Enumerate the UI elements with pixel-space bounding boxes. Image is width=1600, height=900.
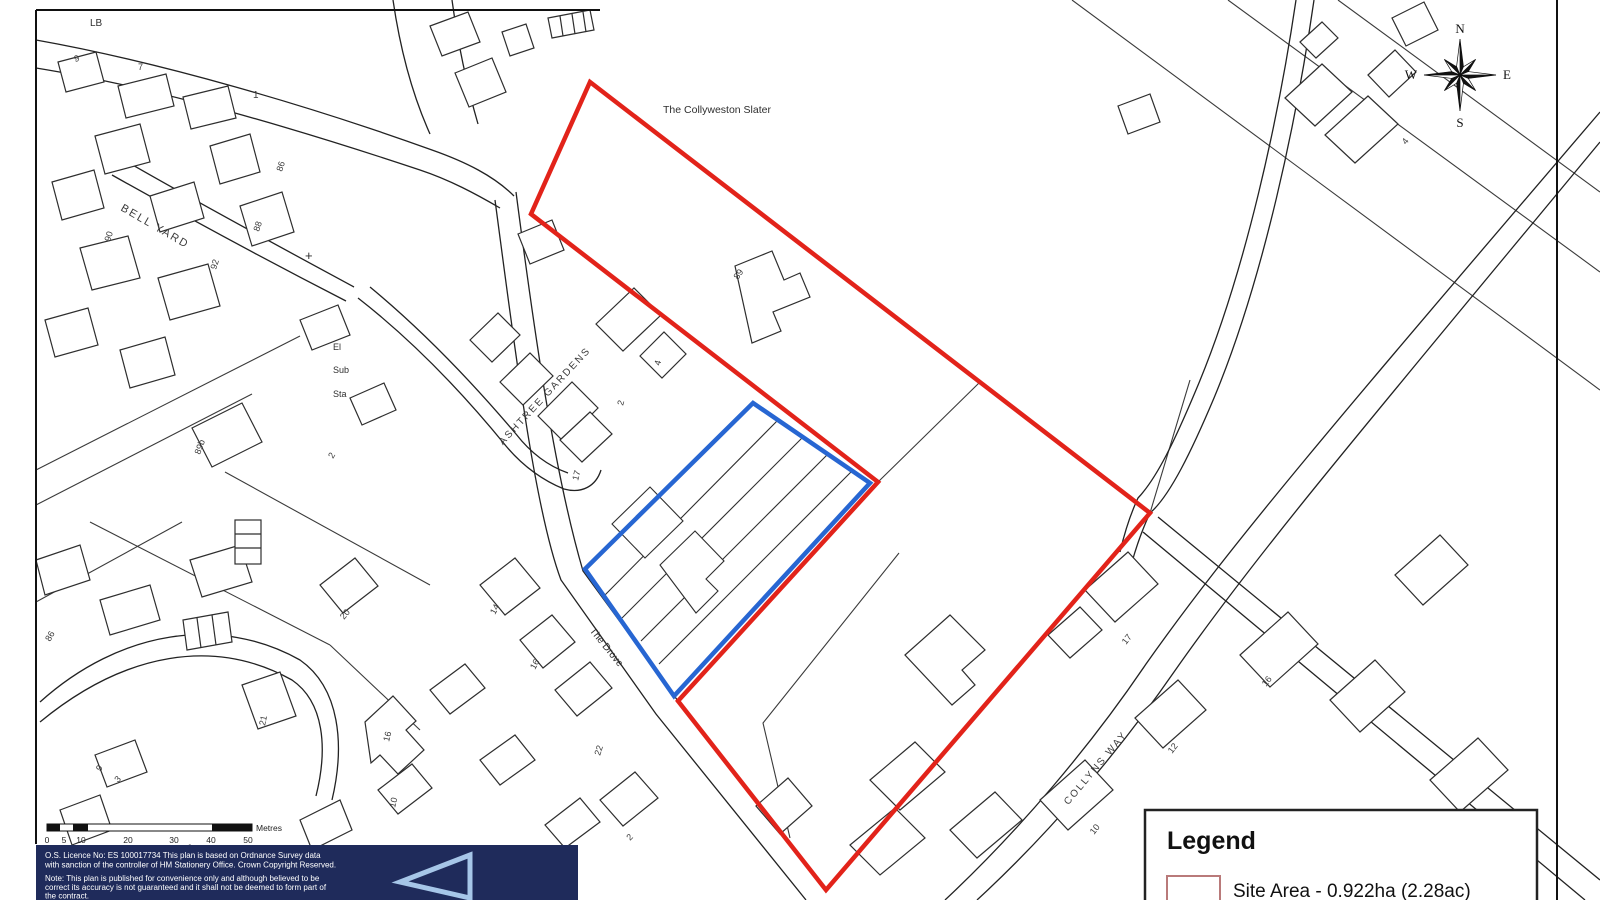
plot-number: 1 <box>253 90 259 101</box>
copyright-line: the contract. <box>45 892 89 900</box>
building-outline <box>660 531 724 613</box>
building-outline <box>520 615 575 668</box>
plot-strip-line <box>641 454 828 641</box>
secondary-boundary <box>585 403 870 696</box>
parcel-line <box>878 382 980 482</box>
scale-tick-label: 30 <box>169 835 179 845</box>
building-outline <box>365 696 424 774</box>
building-outline <box>870 742 945 810</box>
building-outline <box>1392 2 1438 46</box>
building-outline <box>80 236 140 290</box>
building-outline <box>470 313 520 362</box>
building-outline <box>235 520 261 564</box>
scale-bar-segment <box>212 824 252 831</box>
label-lb: LB <box>90 18 103 29</box>
building-outline <box>183 612 232 650</box>
compass-north-label: N <box>1455 21 1465 36</box>
plus-mark: + <box>305 248 313 263</box>
building-outline <box>120 337 175 388</box>
building-outline <box>1135 680 1206 748</box>
plot-number: 22 <box>592 744 605 757</box>
copyright-line: O.S. Licence No: ES 100017734 This plan … <box>45 851 321 860</box>
plot-number: 4 <box>1400 136 1411 146</box>
building-outline <box>1118 94 1160 134</box>
compass-east-label: E <box>1503 67 1511 82</box>
building-outline <box>45 308 98 357</box>
plot-number: 86 <box>43 629 57 643</box>
building-outline <box>95 124 150 174</box>
building-outline <box>1330 660 1405 732</box>
plot-number: 2 <box>326 451 337 460</box>
building-outline <box>596 288 661 351</box>
scale-tick-label: 40 <box>206 835 216 845</box>
parcel-line <box>1338 0 1600 192</box>
building-outline <box>300 800 352 850</box>
parcel-line <box>1072 0 1600 390</box>
building-outline <box>555 662 612 716</box>
building-outline <box>242 672 296 729</box>
building-outline <box>1395 535 1468 605</box>
copyright-footer: O.S. Licence No: ES 100017734 This plan … <box>36 845 578 900</box>
building-outline <box>320 558 378 613</box>
building-outline <box>60 795 112 845</box>
building-outline <box>455 58 506 107</box>
legend-title: Legend <box>1167 827 1256 855</box>
building-outline <box>52 170 104 220</box>
building-outline <box>350 383 396 425</box>
building-outline <box>950 792 1022 858</box>
building-outline <box>58 52 104 92</box>
road-edge <box>945 112 1600 900</box>
building-outline <box>545 798 600 848</box>
building-outline <box>36 545 90 595</box>
secondary-boundary-base <box>585 403 870 696</box>
building-outline <box>210 134 260 184</box>
building-outline <box>1048 607 1102 658</box>
building-outline <box>158 264 220 320</box>
site-boundary-base <box>531 82 1150 890</box>
building-outline <box>480 735 535 785</box>
plot-number: 10 <box>1088 822 1102 836</box>
building-outline <box>612 487 683 558</box>
building-outline <box>1085 552 1158 622</box>
label-sta: Sta <box>333 389 347 399</box>
plot-number: 7 <box>138 62 143 72</box>
site-boundary <box>531 82 1150 890</box>
building-outline <box>480 558 540 615</box>
site-area-label: Site Area - 0.922ha (2.28ac) <box>1233 881 1471 900</box>
plot-number: 17 <box>1120 632 1134 646</box>
building-outline <box>756 778 812 834</box>
scale-tick-label: 10 <box>76 835 86 845</box>
building-outline <box>118 74 174 118</box>
building-outlines <box>36 2 1508 890</box>
site-plan-map: LB BELL YARD ASHTREE GARDENS The Drove C… <box>0 0 1600 900</box>
building-outline <box>378 764 432 814</box>
building-outline <box>548 10 594 38</box>
compass-west-label: W <box>1405 67 1418 82</box>
building-outline <box>240 192 294 246</box>
scale-tick-label: 5 <box>62 835 67 845</box>
building-outline <box>430 664 485 714</box>
scale-bar-segment <box>47 824 60 831</box>
plot-number: 86 <box>274 160 287 173</box>
building-outline <box>100 585 160 635</box>
copyright-line: Note: This plan is published for conveni… <box>45 874 320 883</box>
compass-south-label: S <box>1456 115 1463 130</box>
copyright-line: with sanction of the controller of HM St… <box>44 861 336 870</box>
label-the-drove: The Drove <box>587 626 625 670</box>
road-edge <box>393 0 430 134</box>
building-outline <box>192 403 262 467</box>
plot-number: 2 <box>615 399 626 406</box>
building-outline <box>1285 64 1352 126</box>
label-collyweston-slater: The Collyweston Slater <box>663 104 771 116</box>
building-outline <box>640 332 686 378</box>
legend-panel: Legend Site Area - 0.922ha (2.28ac) <box>1145 810 1537 900</box>
scale-tick-label: 20 <box>123 835 133 845</box>
building-outline <box>905 615 985 705</box>
plot-number: 2 <box>624 832 635 843</box>
building-outline <box>502 24 534 56</box>
scale-tick-label: 50 <box>243 835 253 845</box>
label-sub: Sub <box>333 365 349 375</box>
building-outline <box>1430 738 1508 812</box>
label-el: El <box>333 342 341 352</box>
map-canvas: LB BELL YARD ASHTREE GARDENS The Drove C… <box>0 0 1600 900</box>
building-outline <box>600 772 658 826</box>
building-outline <box>735 251 810 343</box>
boundary-base-lines <box>531 82 1150 890</box>
building-outline <box>183 86 236 129</box>
plot-number: 21 <box>257 715 269 727</box>
road-edge <box>1120 0 1296 552</box>
plot-number: 92 <box>208 258 221 271</box>
scale-unit-label: Metres <box>256 823 282 833</box>
plot-number: 17 <box>570 469 582 481</box>
site-area-swatch <box>1167 876 1220 900</box>
building-outline <box>430 12 480 56</box>
scale-tick-label: 0 <box>45 835 50 845</box>
road-edge <box>1132 0 1314 562</box>
road-edge <box>112 175 346 301</box>
scale-bar-segment <box>73 824 88 831</box>
building-outline <box>300 305 350 350</box>
